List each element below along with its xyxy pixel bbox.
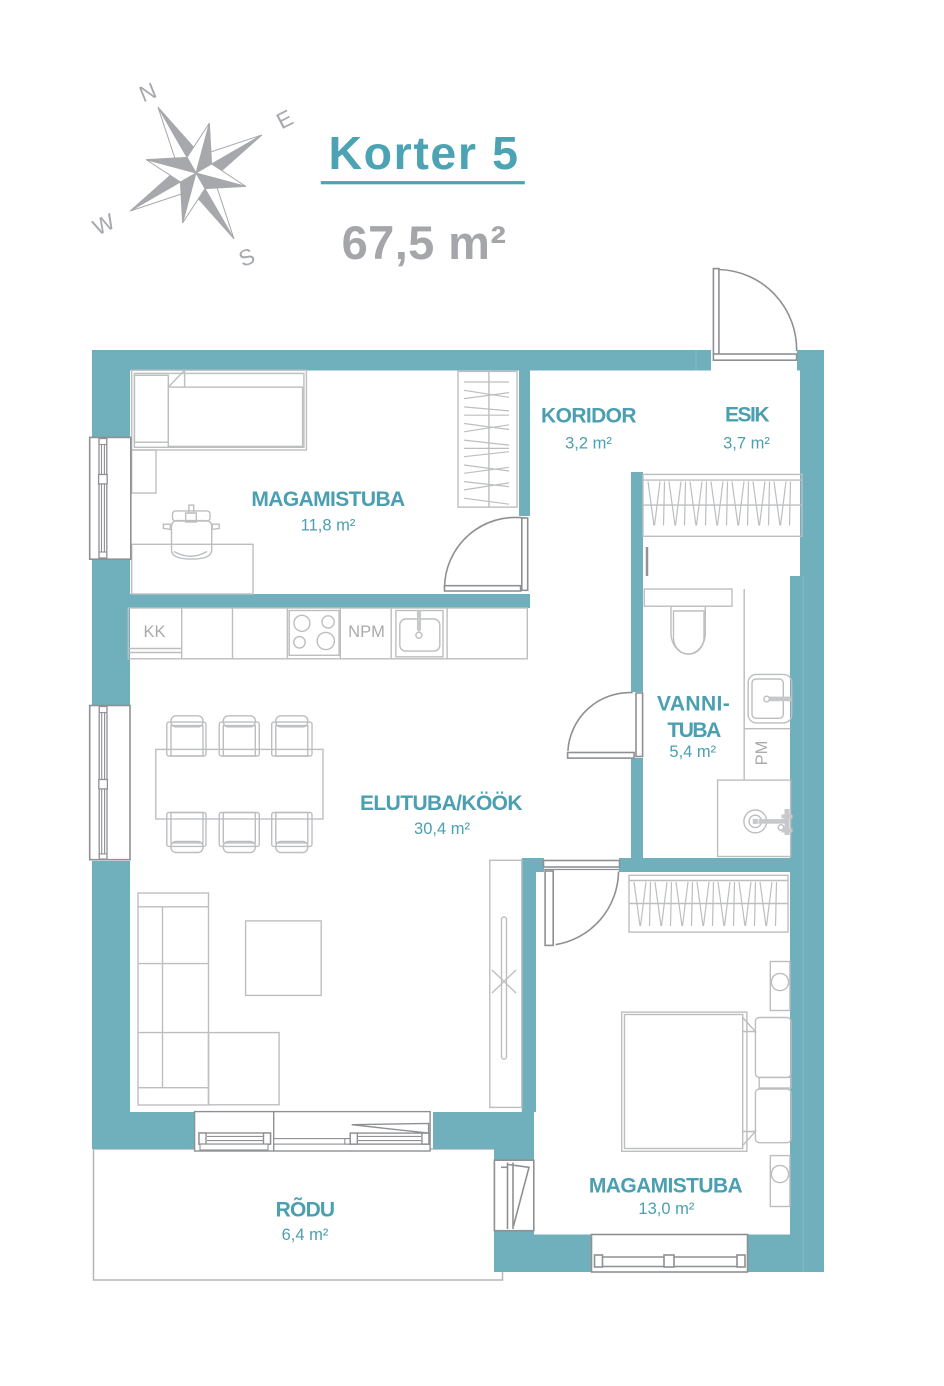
svg-text:Korter 5: Korter 5 <box>328 127 519 179</box>
svg-text:ESIK: ESIK <box>725 404 769 427</box>
svg-text:6,4 m²: 6,4 m² <box>282 1226 329 1244</box>
svg-text:KORIDOR: KORIDOR <box>541 405 636 428</box>
svg-text:TUBA: TUBA <box>667 719 721 742</box>
svg-text:67,5 m²: 67,5 m² <box>342 216 507 269</box>
svg-text:PM: PM <box>753 741 771 766</box>
svg-text:MAGAMISTUBA: MAGAMISTUBA <box>589 1175 743 1198</box>
svg-text:30,4 m²: 30,4 m² <box>414 820 470 838</box>
svg-text:13,0 m²: 13,0 m² <box>638 1200 694 1218</box>
svg-text:VANNI-: VANNI- <box>657 693 730 716</box>
svg-text:RÕDU: RÕDU <box>276 1197 335 1221</box>
svg-text:KK: KK <box>143 623 165 641</box>
svg-text:3,7 m²: 3,7 m² <box>723 435 770 453</box>
svg-text:NPM: NPM <box>348 623 385 641</box>
svg-text:3,2 m²: 3,2 m² <box>565 435 612 453</box>
svg-text:11,8 m²: 11,8 m² <box>301 517 356 535</box>
svg-text:MAGAMISTUBA: MAGAMISTUBA <box>251 488 405 511</box>
svg-text:5,4 m²: 5,4 m² <box>669 743 716 761</box>
svg-text:ELUTUBA/KÖÖK: ELUTUBA/KÖÖK <box>360 792 522 815</box>
